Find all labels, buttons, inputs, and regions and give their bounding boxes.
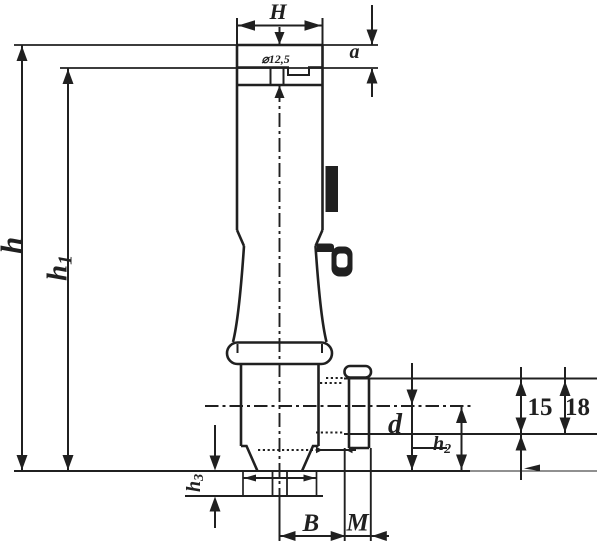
svg-text:15: 15 (528, 394, 553, 421)
svg-text:M: M (346, 510, 370, 537)
svg-text:18: 18 (565, 394, 590, 421)
svg-text:H: H (269, 0, 288, 24)
svg-text:a: a (350, 41, 360, 63)
svg-text:h: h (0, 237, 29, 254)
svg-text:d: d (388, 409, 403, 440)
svg-text:⌀12,5: ⌀12,5 (262, 52, 290, 66)
svg-text:B: B (302, 510, 320, 537)
